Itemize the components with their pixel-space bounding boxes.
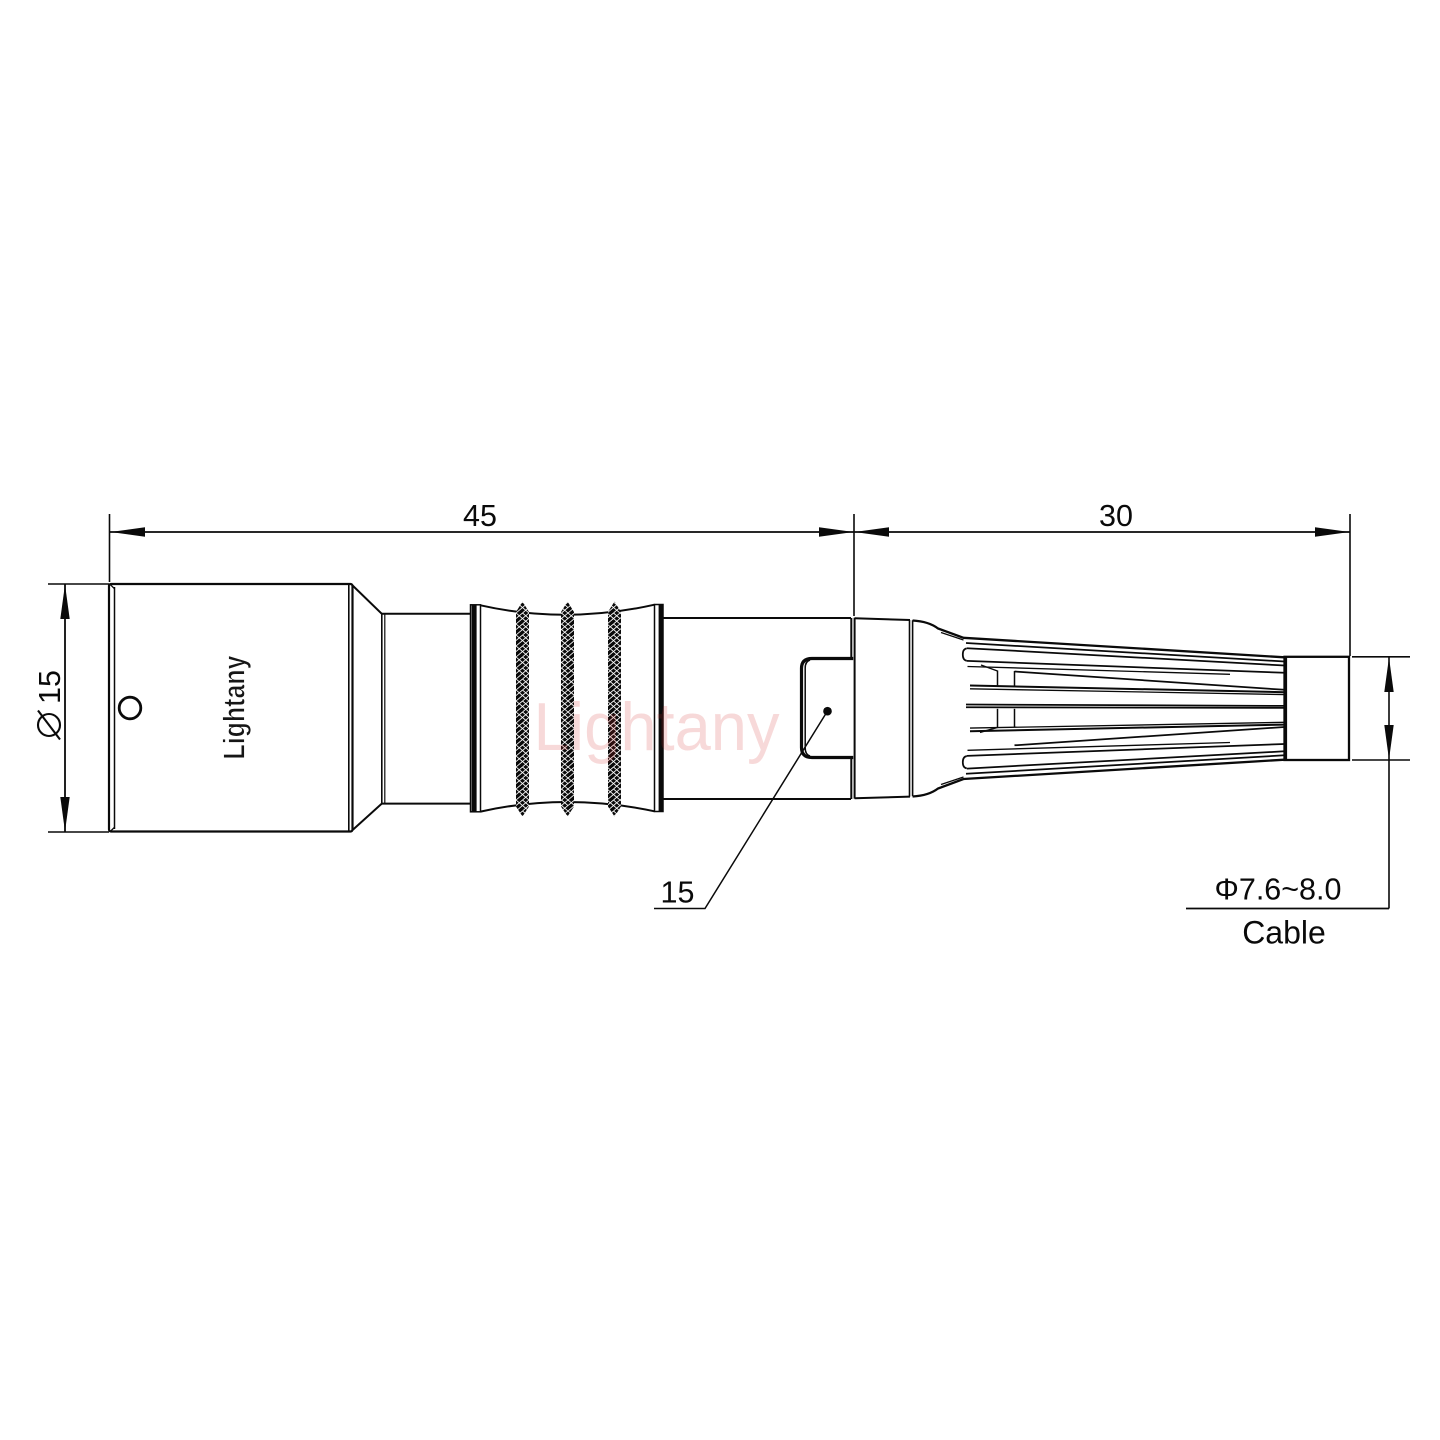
- svg-text:Φ7.6~8.0: Φ7.6~8.0: [1215, 873, 1342, 907]
- svg-text:30: 30: [1099, 499, 1133, 533]
- svg-text:Cable: Cable: [1242, 915, 1326, 951]
- svg-text:Lightany: Lightany: [534, 689, 780, 765]
- svg-text:15: 15: [33, 670, 67, 704]
- svg-text:45: 45: [463, 499, 497, 533]
- svg-text:Lightany: Lightany: [217, 655, 252, 760]
- svg-text:15: 15: [661, 876, 695, 910]
